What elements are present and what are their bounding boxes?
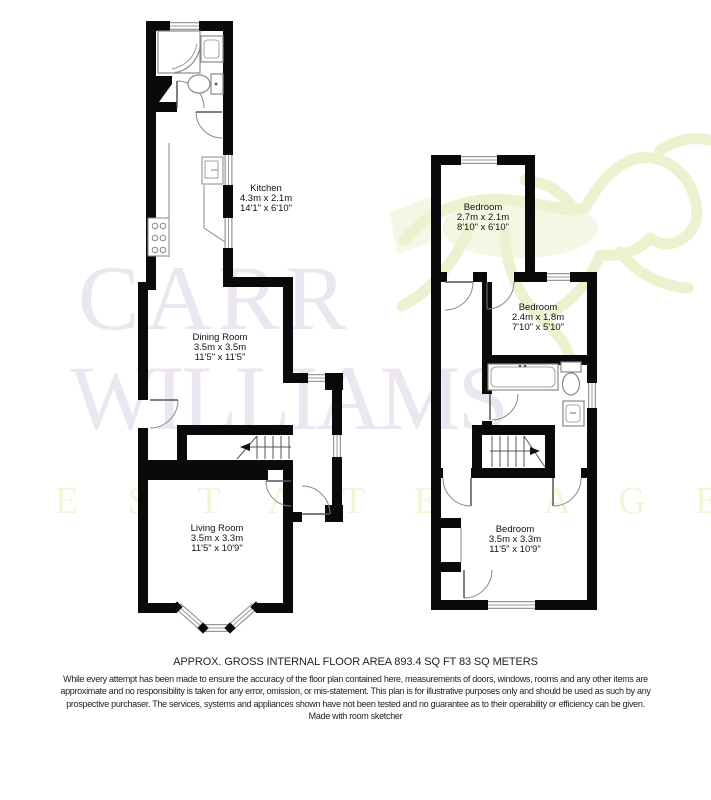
- svg-text:8'10" x 6'10": 8'10" x 6'10": [457, 222, 509, 233]
- sink-icon: [201, 36, 223, 62]
- ground-floor-staircase: [237, 436, 291, 459]
- toilet-icon: [188, 74, 223, 94]
- toilet-icon: [561, 362, 581, 395]
- disclaimer-line-1: While every attempt has been made to ens…: [0, 673, 711, 685]
- footer: APPROX. GROSS INTERNAL FLOOR AREA 893.4 …: [0, 656, 711, 723]
- bathtub-icon: [488, 364, 558, 390]
- svg-text:11'5" x 11'5": 11'5" x 11'5": [195, 352, 246, 363]
- floorplan-page: CARR WILLIAMS E S T A T E A G E N T S: [0, 0, 711, 800]
- ground-floor-plan: Kitchen 4.3m x 2.1m 14'1" x 6'10" Dining…: [138, 21, 343, 634]
- room-label-bedroom-3: Bedroom 3.5m x 3.3m 11'5" x 10'9": [489, 524, 541, 555]
- room-label-bedroom-1: Bedroom 2.7m x 2.1m 8'10" x 6'10": [457, 202, 509, 233]
- disclaimer-line-2: approximate and no responsibility is tak…: [0, 685, 711, 697]
- hob-icon: [148, 218, 169, 256]
- floorplan-drawing: Kitchen 4.3m x 2.1m 14'1" x 6'10" Dining…: [0, 0, 711, 655]
- counter-edge-right: [204, 185, 225, 242]
- room-label-dining-room: Dining Room 3.5m x 3.5m 11'5" x 11'5": [193, 332, 248, 363]
- made-with-credit: Made with room sketcher: [0, 710, 711, 722]
- kitchen-sink-icon: [202, 157, 223, 184]
- svg-text:11'5" x 10'9": 11'5" x 10'9": [191, 543, 242, 554]
- svg-text:14'1" x 6'10": 14'1" x 6'10": [240, 203, 292, 214]
- room-label-bedroom-2: Bedroom 2.4m x 1.8m 7'10" x 5'10": [512, 302, 564, 333]
- ff-bathroom-fixtures: [488, 362, 584, 426]
- sink-icon: [563, 401, 584, 426]
- first-floor-staircase: [490, 436, 545, 467]
- disclaimer-line-3: prospective purchaser. The services, sys…: [0, 698, 711, 710]
- shower-icon: [158, 31, 200, 73]
- room-label-living-room: Living Room 3.5m x 3.3m 11'5" x 10'9": [191, 523, 244, 554]
- kitchen-fixtures: [148, 143, 225, 257]
- svg-text:7'10" x 5'10": 7'10" x 5'10": [512, 322, 564, 333]
- disclaimer: While every attempt has been made to ens…: [0, 673, 711, 723]
- floor-area-title: APPROX. GROSS INTERNAL FLOOR AREA 893.4 …: [0, 656, 711, 668]
- room-label-kitchen: Kitchen 4.3m x 2.1m 14'1" x 6'10": [240, 183, 292, 214]
- svg-text:11'5" x 10'9": 11'5" x 10'9": [489, 544, 540, 555]
